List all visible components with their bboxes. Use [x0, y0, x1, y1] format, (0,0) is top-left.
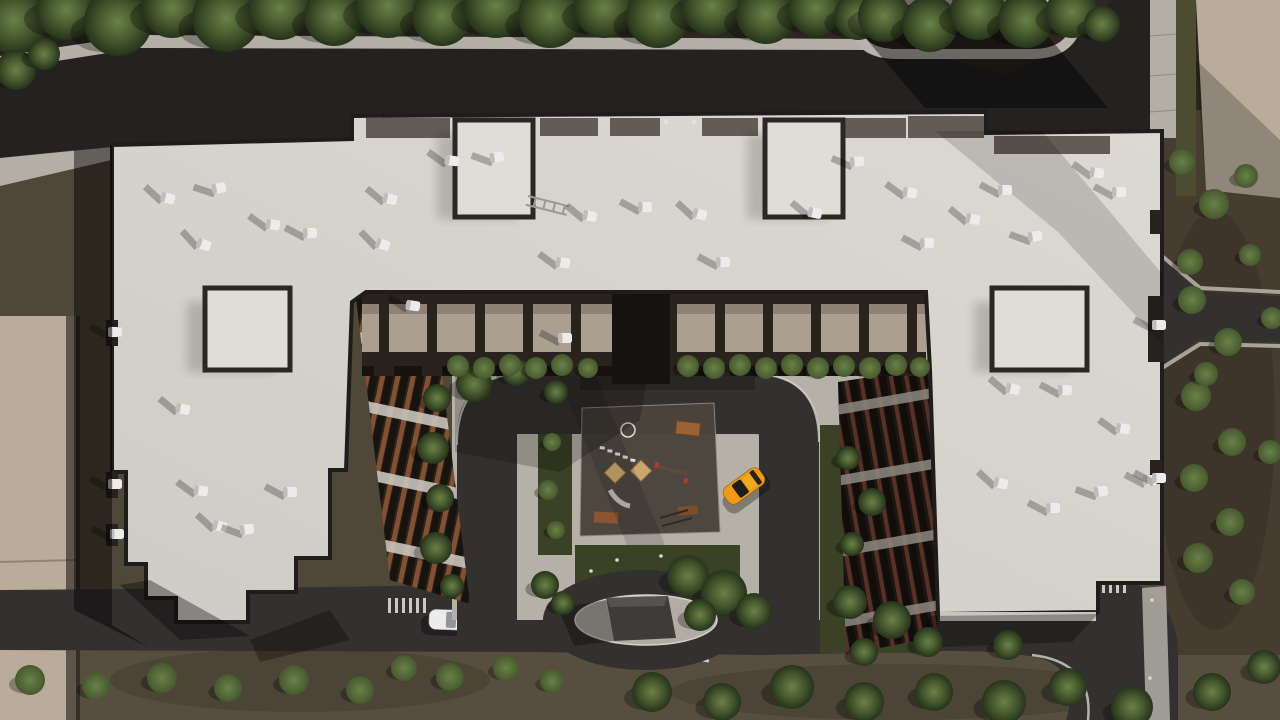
bush: [1183, 543, 1213, 573]
bush: [279, 665, 309, 695]
bush: [1178, 286, 1206, 314]
scene-canvas: [0, 0, 1280, 720]
bush: [1199, 189, 1229, 219]
aerial-architectural-render: [0, 0, 1280, 720]
tree: [28, 38, 60, 70]
tree: [426, 484, 454, 512]
bush: [436, 663, 464, 691]
core-east-wing: [992, 288, 1087, 370]
bush: [729, 354, 751, 376]
pedestrian: [615, 558, 619, 562]
tree: [544, 380, 568, 404]
bush: [547, 521, 565, 539]
crosswalk-bar: [416, 598, 419, 613]
bush: [540, 669, 564, 693]
bush: [859, 357, 881, 379]
bush: [525, 357, 547, 379]
tree: [684, 599, 716, 631]
tree: [1247, 650, 1280, 684]
roof-drain: [664, 120, 669, 125]
bush: [1169, 149, 1195, 175]
bush: [578, 358, 598, 378]
bush: [1216, 508, 1244, 536]
bush: [473, 357, 495, 379]
crosswalk-bar: [409, 598, 412, 613]
bush: [755, 357, 777, 379]
core-north-west: [455, 120, 533, 217]
bush: [1229, 579, 1255, 605]
bush: [1239, 244, 1261, 266]
tree: [423, 384, 451, 412]
tree: [915, 673, 953, 711]
tree: [736, 593, 772, 629]
west-neighbor-roof: [0, 316, 76, 720]
bush: [807, 357, 829, 379]
tree: [1193, 673, 1231, 711]
pedestrian: [589, 569, 593, 573]
tree: [703, 683, 741, 720]
tree: [993, 630, 1023, 660]
tree: [840, 532, 864, 556]
tree: [632, 672, 672, 712]
bush: [15, 665, 45, 695]
bush: [551, 354, 573, 376]
bush: [1177, 249, 1203, 275]
pedestrian: [1150, 598, 1154, 602]
bush: [1234, 164, 1258, 188]
crosswalk-bar: [402, 598, 405, 613]
bush: [346, 676, 374, 704]
tree: [1084, 6, 1120, 42]
bush: [214, 674, 242, 702]
bush: [1214, 328, 1242, 356]
bush: [493, 655, 519, 681]
crosswalk-bar: [423, 598, 426, 613]
tree: [417, 432, 449, 464]
tree: [850, 638, 878, 666]
bush: [391, 655, 417, 681]
tree: [858, 488, 886, 516]
center-entrance-recess: [612, 288, 670, 384]
tree: [440, 574, 464, 598]
bush: [82, 672, 110, 700]
tree: [1049, 668, 1087, 706]
crosswalk-bar: [395, 598, 398, 613]
bush: [147, 663, 177, 693]
bush: [499, 354, 521, 376]
bush: [885, 354, 907, 376]
core-west-wing: [205, 288, 290, 370]
tree: [913, 627, 943, 657]
core-north-east: [765, 120, 843, 217]
tree: [833, 585, 867, 619]
bush: [781, 354, 803, 376]
bush: [447, 355, 469, 377]
bush: [1194, 362, 1218, 386]
pedestrian: [659, 554, 663, 558]
northeast-sidewalk: [1150, 0, 1176, 138]
bush: [1218, 428, 1246, 456]
crosswalk-bar: [388, 598, 391, 613]
tree: [836, 446, 860, 470]
bush: [833, 355, 855, 377]
bush: [677, 355, 699, 377]
pedestrian: [1148, 676, 1152, 680]
bush: [703, 357, 725, 379]
tree: [770, 665, 814, 709]
bush: [910, 357, 930, 377]
tree: [873, 601, 911, 639]
tree: [551, 591, 575, 615]
bush: [538, 480, 558, 500]
bush: [1180, 464, 1208, 492]
bush: [543, 433, 561, 451]
tree: [420, 532, 452, 564]
play-table: [675, 421, 700, 436]
